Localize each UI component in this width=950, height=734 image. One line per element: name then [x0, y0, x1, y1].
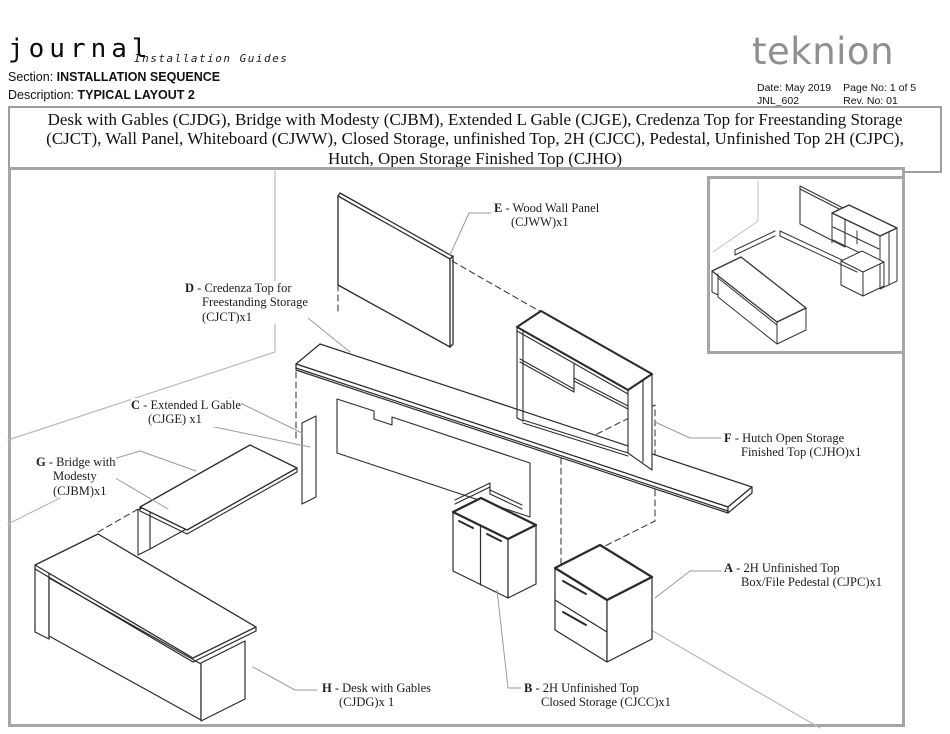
inset-hutch	[832, 205, 897, 289]
label-f: F - Hutch Open Storage Finished Top (CJH…	[724, 431, 861, 460]
label-a: A - 2H Unfinished Top Box/File Pedestal …	[724, 561, 882, 590]
pedestal-a	[555, 545, 652, 662]
inset-storage-box	[841, 251, 884, 296]
bridge-g	[138, 445, 297, 555]
assembled-view-drawing	[710, 179, 902, 351]
desk-h	[35, 534, 256, 721]
page: journal Installation Guides Section: INS…	[0, 0, 950, 734]
label-d: D - Credenza Top for Freestanding Storag…	[185, 281, 308, 324]
label-e: E - Wood Wall Panel (CJWW)x1	[494, 201, 599, 230]
wall-panel-e	[338, 193, 453, 347]
l-gable-c	[302, 416, 316, 504]
assembled-view-inset	[707, 176, 905, 354]
label-h: H - Desk with Gables (CJDG)x 1	[322, 681, 431, 710]
inset-desk	[712, 257, 806, 344]
label-b: B - 2H Unfinished Top Closed Storage (CJ…	[524, 681, 671, 710]
label-c: C - Extended L Gable (CJGE) x1	[131, 398, 241, 427]
exploded-diagram	[0, 0, 950, 734]
label-g: G - Bridge with Modesty (CJBM)x1	[36, 455, 116, 498]
inset-room-lines	[713, 181, 758, 252]
